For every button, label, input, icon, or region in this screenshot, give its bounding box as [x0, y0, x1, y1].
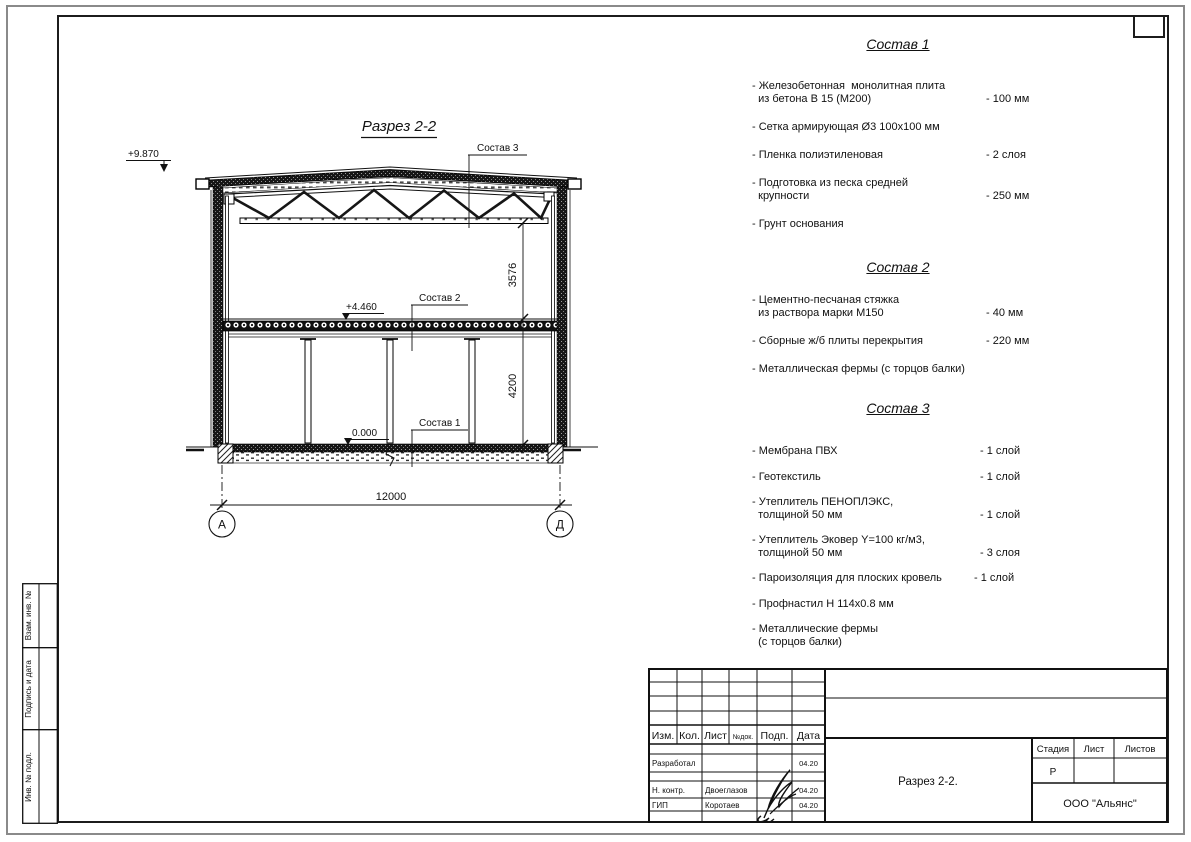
row-role: ГИП [652, 801, 668, 810]
item-value: - 2 слоя [986, 149, 1026, 162]
row-role: Н. контр. [652, 786, 685, 795]
item-name: - Сетка армирующая Ø3 100х100 мм [752, 121, 986, 134]
list-item: - Мембрана ПВХ - 1 слой [752, 445, 1044, 458]
item-name: - Пленка полиэтиленовая [752, 149, 986, 162]
list-item: - Грунт основания [752, 218, 1044, 231]
item-name: - Утеплитель Эковер Y=100 кг/м3, толщино… [752, 534, 980, 559]
left-footing [218, 444, 233, 463]
item-value: - 1 слой [974, 572, 1014, 585]
left-wall [213, 187, 223, 447]
item-value: - 3 слоя [980, 547, 1020, 560]
drawing-title-label: Разрез 2-2 [362, 118, 437, 135]
composition-1-section: Состав 1 - Железобетонная монолитная пли… [752, 36, 1044, 246]
span-dimension: 12000 А Д [209, 465, 573, 537]
section-drawing: Разрез 2-2 +9.870 [100, 95, 620, 550]
sand-bed-band [233, 452, 548, 463]
list-item: - Пароизоляция для плоских кровель - 1 с… [752, 572, 1044, 585]
roof-truss [224, 186, 554, 224]
composition-3-section: Состав 3 - Мембрана ПВХ - 1 слой - Геоте… [752, 400, 1044, 661]
axis-left-label: А [218, 518, 226, 532]
item-value: - 220 мм [986, 335, 1029, 348]
side-stamp-column: Взам. инв. № Подпись и дата Инв. № подл. [22, 583, 58, 824]
elevation-zero-label: 0.000 [352, 428, 377, 439]
header-ndok: №док. [733, 734, 754, 741]
row-name: Коротаев [705, 801, 740, 810]
truss-web-members [233, 190, 551, 218]
document-title: Разрез 2-2. [898, 776, 958, 788]
hollow-core-slab-band [223, 321, 557, 331]
side-label-podpis: Подпись и дата [24, 660, 33, 718]
elevation-mark-floor: +4.460 [342, 302, 384, 320]
company-name: ООО "Альянс" [1063, 798, 1137, 810]
row-date: 04.20 [799, 786, 818, 795]
elevation-roof-label: +9.870 [128, 149, 159, 160]
drawing-sheet: Разрез 2-2 +9.870 [0, 0, 1191, 842]
right-wall [557, 187, 567, 447]
header-list: Лист [704, 730, 727, 742]
dimension-upper-label: 3576 [507, 263, 519, 287]
list-item: - Сетка армирующая Ø3 100х100 мм [752, 121, 1044, 134]
item-name: - Металлическая фермы (с торцов балки) [752, 363, 1032, 376]
down-arrow-icon [160, 164, 168, 172]
item-name: - Пароизоляция для плоских кровель [752, 572, 974, 585]
title-block: Изм. Кол. Лист №док. Подп. Дата Разработ… [648, 668, 1168, 823]
list-item: - Геотекстиль - 1 слой [752, 471, 1044, 484]
item-name: - Геотекстиль [752, 471, 980, 484]
item-value: - 40 мм [986, 307, 1023, 320]
item-value: - 100 мм [986, 93, 1029, 106]
list-item: - Металлические фермы (с торцов балки) [752, 623, 1044, 648]
composition-1-title: Состав 1 [752, 36, 1044, 52]
roof-left-cap [196, 179, 209, 189]
item-name: - Металлические фермы (с торцов балки) [752, 623, 980, 648]
ground-slab [186, 444, 598, 466]
item-value: - 1 слой [980, 471, 1020, 484]
elevation-mark-zero: 0.000 [344, 428, 389, 445]
header-podp: Подп. [761, 730, 789, 742]
row-role: Разработал [652, 759, 696, 768]
callout-sostav3-label: Состав 3 [477, 143, 519, 154]
composition-2-title: Состав 2 [752, 259, 1044, 275]
side-label-vzam: Взам. инв. № [24, 590, 33, 640]
item-value: - 1 слой [980, 445, 1020, 458]
header-kol: Кол. [679, 730, 700, 742]
elevation-floor-label: +4.460 [346, 302, 377, 313]
truss-bottom-chord [240, 218, 548, 224]
header-izm: Изм. [652, 730, 675, 742]
stage-sheets-label: Листов [1125, 744, 1156, 755]
item-name: - Железобетонная монолитная плита из бет… [752, 80, 986, 106]
item-name: - Сборные ж/б плиты перекрытия [752, 335, 986, 348]
drawing-title: Разрез 2-2 [361, 118, 437, 138]
dimension-lower-label: 4200 [507, 374, 519, 398]
list-item: - Утеплитель ПЕНОПЛЭКС, толщиной 50 мм -… [752, 496, 1044, 521]
item-name: - Мембрана ПВХ [752, 445, 980, 458]
row-date: 04.20 [799, 759, 818, 768]
concrete-slab-band [233, 444, 548, 452]
item-name: - Профнастил Н 114х0.8 мм [752, 598, 980, 611]
axis-right-label: Д [556, 518, 564, 532]
elevation-mark-roof: +9.870 [126, 149, 171, 172]
list-item: - Утеплитель Эковер Y=100 кг/м3, толщино… [752, 534, 1044, 559]
list-item: - Пленка полиэтиленовая - 2 слоя [752, 149, 1044, 162]
stage-value: Р [1050, 767, 1057, 778]
header-data: Дата [797, 730, 820, 742]
list-item: - Металлическая фермы (с торцов балки) [752, 363, 1044, 376]
list-item: - Сборные ж/б плиты перекрытия - 220 мм [752, 335, 1044, 348]
row-date: 04.20 [799, 801, 818, 810]
composition-3-title: Состав 3 [752, 400, 1044, 416]
right-footing [548, 444, 563, 463]
callout-sostav1-label: Состав 1 [419, 418, 461, 429]
list-item: - Профнастил Н 114х0.8 мм [752, 598, 1044, 611]
item-name: - Цементно-песчаная стяжка из раствора м… [752, 294, 986, 320]
frame-corner-box [1133, 15, 1165, 38]
item-name: - Утеплитель ПЕНОПЛЭКС, толщиной 50 мм [752, 496, 980, 521]
composition-2-section: Состав 2 - Цементно-песчаная стяжка из р… [752, 259, 1044, 391]
row-name: Двоеглазов [705, 786, 748, 795]
item-name: - Подготовка из песка средней крупности [752, 177, 986, 203]
roof-right-cap [568, 179, 581, 189]
list-item: - Цементно-песчаная стяжка из раствора м… [752, 294, 1044, 320]
item-name: - Грунт основания [752, 218, 986, 231]
list-item: - Железобетонная монолитная плита из бет… [752, 80, 1044, 106]
stage-label: Стадия [1037, 744, 1069, 755]
stage-sheet-label: Лист [1084, 744, 1105, 755]
dimension-span-label: 12000 [376, 491, 407, 503]
callout-sostav2-label: Состав 2 [419, 293, 461, 304]
side-label-inv: Инв. № подл. [24, 752, 33, 802]
item-value: - 250 мм [986, 190, 1029, 203]
list-item: - Подготовка из песка средней крупности … [752, 177, 1044, 203]
item-value: - 1 слой [980, 509, 1020, 522]
